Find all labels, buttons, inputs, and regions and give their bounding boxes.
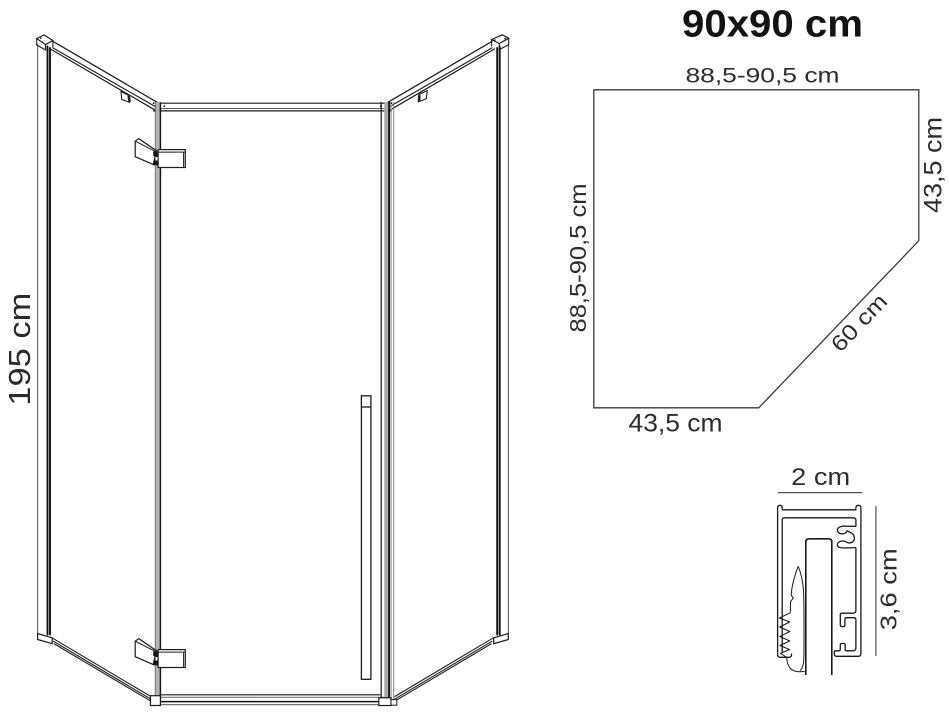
- svg-text:88,5-90,5 cm: 88,5-90,5 cm: [686, 64, 840, 87]
- svg-text:195 cm: 195 cm: [2, 293, 37, 406]
- svg-text:3,6 cm: 3,6 cm: [875, 548, 901, 630]
- svg-text:90x90 cm: 90x90 cm: [682, 4, 863, 46]
- svg-text:2 cm: 2 cm: [791, 464, 850, 491]
- svg-text:43,5 cm: 43,5 cm: [629, 410, 723, 438]
- svg-text:88,5-90,5 cm: 88,5-90,5 cm: [565, 184, 591, 333]
- svg-text:43,5 cm: 43,5 cm: [920, 117, 948, 213]
